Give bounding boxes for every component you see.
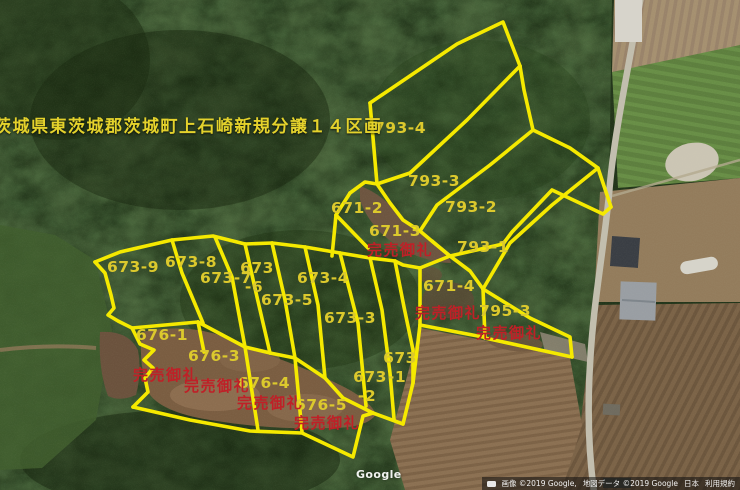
- map-data-credit: 地図データ ©2019 Google: [583, 478, 678, 489]
- terms-link[interactable]: 利用規約: [705, 478, 735, 489]
- map-viewport[interactable]: 793-4793-3793-2793-1671-2671-3671-4795-3…: [0, 0, 740, 490]
- sold-out-label: 完売御礼: [415, 304, 481, 322]
- satellite-imagery: 793-4793-3793-2793-1671-2671-3671-4795-3…: [0, 0, 740, 490]
- imagery-credit: 画像 ©2019 Google,: [502, 478, 577, 489]
- parcel-label-673-9: 673-9: [107, 258, 159, 276]
- imagery-icon: [487, 481, 496, 487]
- parcel-label-793-1: 793-1: [457, 238, 509, 256]
- sold-out-label: 完売御礼: [184, 377, 250, 395]
- parcel-label-676-3: 676-3: [188, 347, 240, 365]
- parcel-label-673-5: 673-5: [261, 291, 313, 309]
- google-logo[interactable]: Google: [356, 468, 402, 481]
- sold-out-label: 完売御礼: [476, 324, 542, 342]
- map-title-label: 茨城県東茨城郡茨城町上石崎新規分譲１４区画: [0, 112, 383, 137]
- parcel-label-671-2: 671-2: [331, 199, 383, 217]
- parcel-label-671-3: 671-3: [369, 222, 421, 240]
- parcel-label-793-3: 793-3: [408, 172, 460, 190]
- region-label: 日本: [684, 478, 699, 489]
- sold-out-label: 完売御礼: [237, 394, 303, 412]
- parcel-label-793-2: 793-2: [445, 198, 497, 216]
- parcel-label-673-4: 673-4: [297, 269, 349, 287]
- parcel-label-671-4: 671-4: [423, 277, 475, 295]
- sold-out-label: 完売御礼: [294, 414, 360, 432]
- attribution-bar: 画像 ©2019 Google, 地図データ ©2019 Google 日本 利…: [482, 477, 740, 490]
- parcel-label-673-3: 673-3: [324, 309, 376, 327]
- parcel-label-676-1: 676-1: [136, 326, 188, 344]
- parcel-label-795-3: 795-3: [479, 302, 531, 320]
- sold-out-label: 完売御礼: [367, 241, 433, 259]
